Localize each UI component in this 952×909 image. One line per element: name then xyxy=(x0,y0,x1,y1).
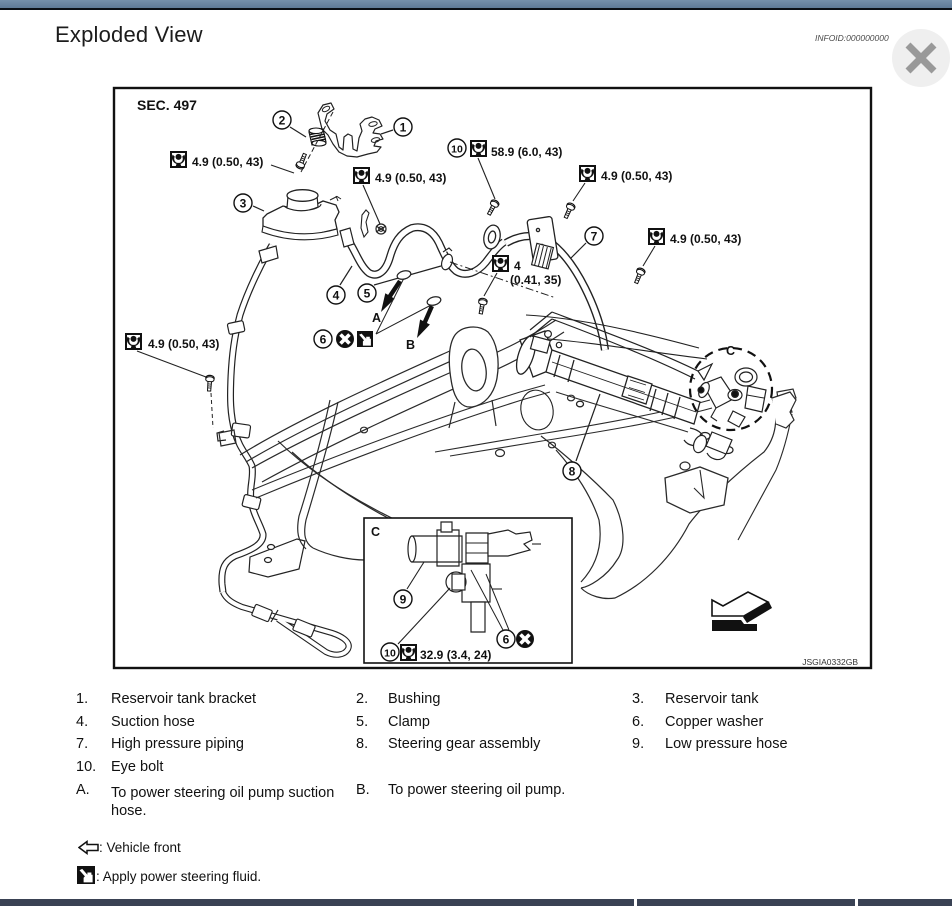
svg-text:4.9 (0.50, 43): 4.9 (0.50, 43) xyxy=(670,232,741,246)
svg-text:3: 3 xyxy=(240,197,247,211)
svg-text:4: 4 xyxy=(514,259,521,273)
svg-text:4.9 (0.50, 43): 4.9 (0.50, 43) xyxy=(192,155,263,169)
svg-text:4.9 (0.50, 43): 4.9 (0.50, 43) xyxy=(375,171,446,185)
svg-text:6: 6 xyxy=(320,333,327,347)
svg-text:B: B xyxy=(406,338,415,352)
svg-text:10: 10 xyxy=(384,648,396,660)
svg-text:8: 8 xyxy=(569,465,576,479)
svg-text:32.9 (3.4, 24): 32.9 (3.4, 24) xyxy=(420,648,491,662)
svg-text:6: 6 xyxy=(503,633,510,647)
svg-text:C: C xyxy=(371,525,380,539)
svg-text:4: 4 xyxy=(333,289,340,303)
svg-text:C: C xyxy=(726,344,735,358)
svg-text:10: 10 xyxy=(451,144,463,156)
svg-text:JSGIA0332GB: JSGIA0332GB xyxy=(802,657,858,667)
svg-text:SEC. 497: SEC. 497 xyxy=(137,97,197,113)
svg-text:A: A xyxy=(372,311,381,325)
svg-text:1: 1 xyxy=(400,121,407,135)
svg-text:4.9 (0.50, 43): 4.9 (0.50, 43) xyxy=(148,337,219,351)
svg-text:7: 7 xyxy=(591,230,598,244)
svg-text:4.9 (0.50, 43): 4.9 (0.50, 43) xyxy=(601,169,672,183)
svg-text:2: 2 xyxy=(279,114,286,128)
svg-text:9: 9 xyxy=(400,593,407,607)
svg-text:5: 5 xyxy=(364,287,371,301)
svg-text:58.9 (6.0, 43): 58.9 (6.0, 43) xyxy=(491,145,562,159)
